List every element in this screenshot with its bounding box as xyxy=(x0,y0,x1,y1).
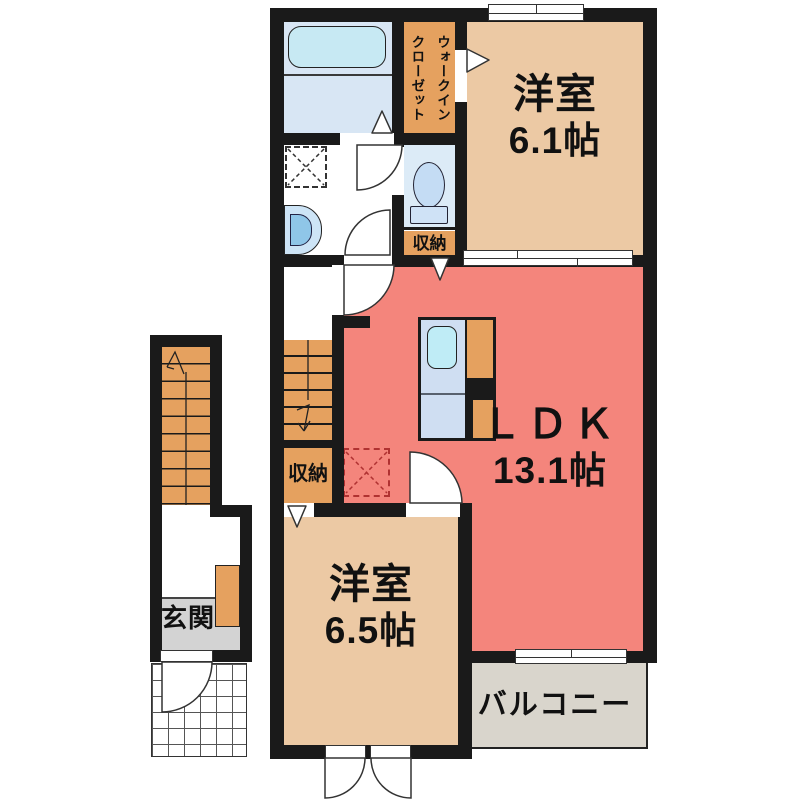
floor-plan: 洋室 6.1帖 ＬＤＫ 13.1帖 洋室 6.5帖 バルコニー 玄関 収納 収納… xyxy=(0,0,800,800)
door-gap-walk-in-closet xyxy=(455,50,467,102)
kitchen-cabinet-upper xyxy=(467,320,493,378)
room-name: 洋室 xyxy=(284,560,458,609)
toilet-bowl-icon xyxy=(413,162,445,208)
wall xyxy=(332,316,370,328)
refrigerator-space-marker xyxy=(343,448,390,497)
door-arc-terrace-left xyxy=(325,758,365,798)
hallway-floor xyxy=(284,267,332,343)
kitchen-sink-icon xyxy=(427,326,457,369)
walk-in-closet-label-line1: ウォークイン xyxy=(429,24,455,132)
wall xyxy=(210,335,222,517)
western-room-1-label: 洋室 6.1帖 xyxy=(467,70,643,164)
outer-staircase xyxy=(162,347,210,505)
walk-in-closet-label-line2: クローゼット xyxy=(404,24,430,132)
door-arc-terrace-right xyxy=(371,758,411,798)
room-name: ＬＤＫ xyxy=(457,400,643,449)
window-western-room-1 xyxy=(488,4,584,21)
wall xyxy=(270,8,657,22)
wall xyxy=(270,8,284,759)
bathtub-icon xyxy=(288,26,386,68)
door-gap-toilet xyxy=(392,147,404,195)
door-gap-western-room-2-right xyxy=(406,503,460,517)
door-gap-ldk-entry xyxy=(332,265,344,315)
wall xyxy=(240,505,252,662)
room-size: 6.5帖 xyxy=(284,609,458,653)
ldk-label: ＬＤＫ 13.1帖 xyxy=(457,400,643,494)
door-gap-washroom xyxy=(344,255,392,267)
door-gap-terrace-left xyxy=(325,745,366,759)
sliding-door-western-room-1-ldk xyxy=(463,250,633,266)
door-gap-western-room-2-left xyxy=(284,503,314,517)
entrance-porch xyxy=(151,663,247,757)
walk-in-closet-label: ウォークイン クローゼット xyxy=(404,24,455,132)
storage-lower-label: 収納 xyxy=(284,462,332,486)
door-gap-entrance xyxy=(160,650,213,662)
wall xyxy=(392,22,404,133)
toilet-tank-icon xyxy=(410,206,448,224)
door-gap-terrace-right xyxy=(370,745,411,759)
room-size: 13.1帖 xyxy=(457,449,643,493)
door-gap-bathroom xyxy=(340,133,394,145)
wall xyxy=(643,8,657,663)
window-balcony xyxy=(515,649,627,664)
room-size: 6.1帖 xyxy=(467,119,643,163)
kitchen-counter-divider xyxy=(421,393,465,395)
inner-staircase xyxy=(284,340,332,443)
western-room-2-label: 洋室 6.5帖 xyxy=(284,560,458,654)
room-name: 洋室 xyxy=(467,70,643,119)
wall xyxy=(284,440,332,448)
bathroom-divider-line xyxy=(284,74,392,76)
wall xyxy=(404,227,455,230)
balcony-label: バルコニー xyxy=(462,688,648,723)
storage-upper-label: 収納 xyxy=(404,234,455,254)
entrance-label: 玄関 xyxy=(157,603,219,634)
washer-space-marker xyxy=(285,146,327,188)
